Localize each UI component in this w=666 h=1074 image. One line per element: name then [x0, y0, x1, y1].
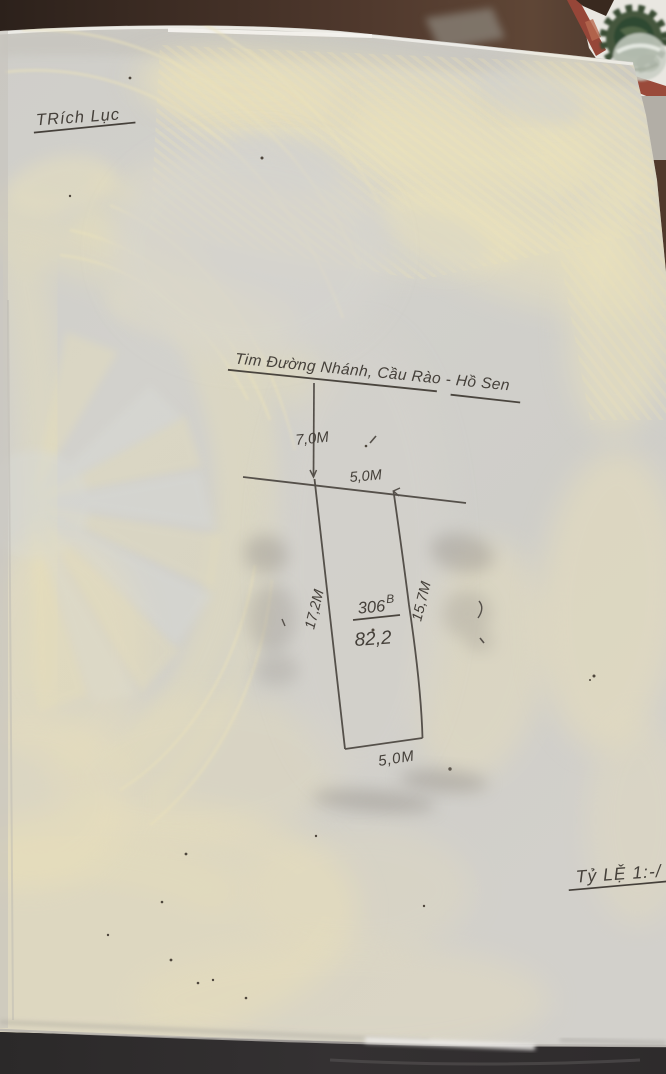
svg-text:5,0M: 5,0M: [349, 467, 383, 486]
svg-text:306: 306: [357, 597, 387, 617]
svg-text:7,0M: 7,0M: [295, 429, 330, 449]
svg-text:B: B: [385, 591, 394, 606]
svg-text:82,2: 82,2: [354, 627, 393, 651]
